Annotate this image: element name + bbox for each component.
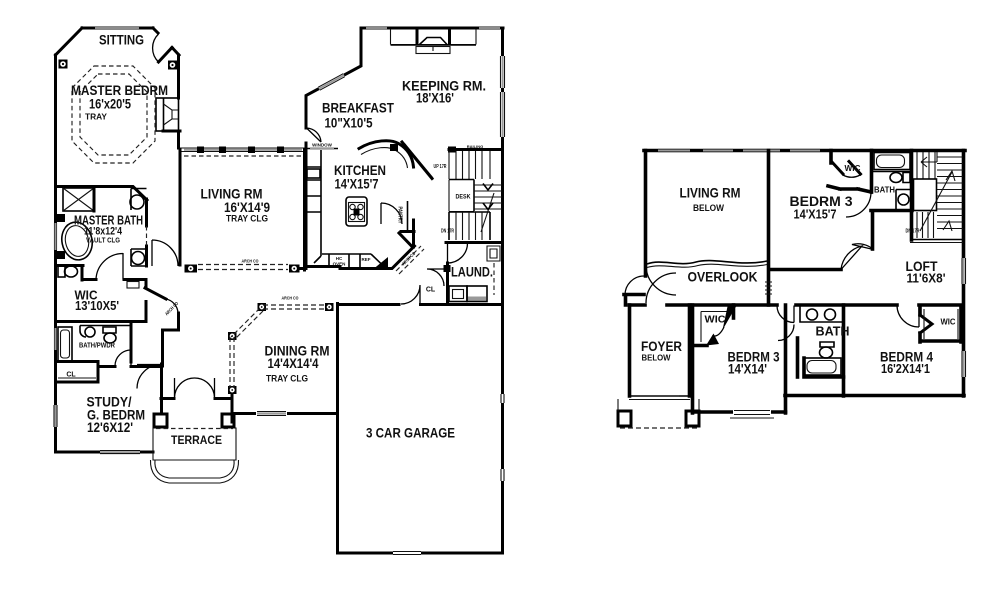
svg-text:WIC: WIC [941, 318, 956, 327]
svg-text:18'X16': 18'X16' [416, 91, 454, 106]
svg-text:BATH: BATH [874, 185, 895, 195]
svg-text:REF: REF [362, 257, 371, 262]
svg-text:TRAY CLG: TRAY CLG [266, 374, 308, 384]
svg-text:LIVING RM: LIVING RM [680, 186, 741, 201]
svg-text:LAUND.: LAUND. [451, 265, 493, 280]
svg-text:OVERLOOK: OVERLOOK [688, 270, 758, 285]
svg-text:CL: CL [66, 372, 76, 379]
svg-text:SITTING: SITTING [99, 33, 144, 48]
svg-text:DESK: DESK [456, 195, 472, 201]
svg-text:TRAY CLG: TRAY CLG [226, 214, 268, 224]
svg-text:DN 17R: DN 17R [441, 229, 454, 235]
svg-text:BELOW: BELOW [693, 203, 724, 214]
svg-text:3 CAR GARAGE: 3 CAR GARAGE [366, 426, 455, 441]
svg-text:BELOW: BELOW [642, 353, 672, 363]
svg-text:TERRACE: TERRACE [171, 435, 222, 447]
svg-text:ARCH CO: ARCH CO [282, 296, 299, 301]
svg-text:12'6X12': 12'6X12' [87, 420, 133, 435]
svg-text:RAILING: RAILING [467, 144, 483, 149]
svg-text:10"X10'5: 10"X10'5 [325, 116, 373, 131]
svg-text:BREAKFAST: BREAKFAST [322, 101, 395, 116]
svg-text:CL: CL [426, 287, 436, 294]
svg-text:BATH/PWDR: BATH/PWDR [79, 343, 115, 350]
svg-text:16'2X14'1: 16'2X14'1 [881, 362, 930, 376]
svg-text:UP 17R: UP 17R [434, 164, 447, 170]
svg-text:14'X15'7: 14'X15'7 [794, 208, 837, 222]
svg-text:WINDOW: WINDOW [312, 143, 332, 148]
svg-text:ARCH CO: ARCH CO [242, 259, 259, 264]
svg-text:BATH: BATH [816, 325, 850, 339]
svg-text:WIC: WIC [705, 315, 726, 326]
svg-text:WIC: WIC [845, 164, 861, 173]
svg-text:OVEN: OVEN [333, 262, 346, 267]
svg-text:14'X15'7: 14'X15'7 [335, 177, 379, 192]
svg-text:11'8x12'4: 11'8x12'4 [84, 226, 123, 238]
svg-text:11'6X8': 11'6X8' [907, 272, 946, 286]
svg-text:13'10X5': 13'10X5' [75, 299, 119, 313]
svg-text:VAULT CLG: VAULT CLG [86, 238, 120, 245]
svg-text:TRAY: TRAY [85, 112, 107, 122]
svg-text:DN 17R: DN 17R [906, 229, 920, 235]
svg-text:HC: HC [336, 256, 343, 261]
svg-text:16'x20'5: 16'x20'5 [89, 97, 131, 112]
svg-text:14'X14': 14'X14' [728, 362, 767, 377]
svg-text:14'4X14'4: 14'4X14'4 [268, 356, 319, 371]
svg-text:PANTRY: PANTRY [397, 207, 403, 225]
